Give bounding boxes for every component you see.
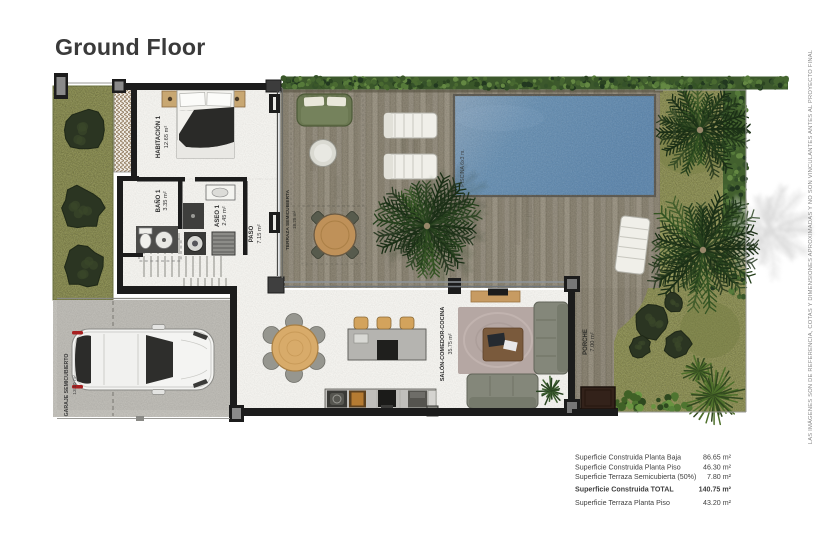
svg-text:Superficie Construida Planta B: Superficie Construida Planta Baja	[575, 454, 681, 462]
svg-text:7.00 m²: 7.00 m²	[590, 332, 596, 351]
svg-text:140.75 m²: 140.75 m²	[699, 486, 732, 494]
svg-text:43.20 m²: 43.20 m²	[703, 499, 732, 507]
svg-text:13.10 m²: 13.10 m²	[72, 375, 78, 395]
svg-text:46.30 m²: 46.30 m²	[703, 464, 732, 472]
svg-text:3.35 m²: 3.35 m²	[163, 191, 169, 210]
svg-text:Superficie Terraza Semicubiert: Superficie Terraza Semicubierta (50%)	[575, 473, 696, 481]
svg-text:LAS IMÁGENES SON DE REFERENCIA: LAS IMÁGENES SON DE REFERENCIA, COTAS Y …	[807, 49, 814, 444]
svg-text:2.45 m²: 2.45 m²	[222, 206, 228, 225]
svg-text:CESPED NATURAL: CESPED NATURAL	[672, 101, 677, 139]
svg-text:BAÑO 1: BAÑO 1	[155, 189, 162, 212]
svg-text:TERRAZA SEMICUBIERTA: TERRAZA SEMICUBIERTA	[285, 189, 291, 250]
svg-text:12.65 m²: 12.65 m²	[164, 126, 170, 149]
svg-text:35.75 m²: 35.75 m²	[448, 333, 454, 354]
svg-text:HABITACIÓN 1: HABITACIÓN 1	[154, 115, 162, 158]
svg-text:Superficie Terraza Planta Piso: Superficie Terraza Planta Piso	[575, 499, 670, 507]
svg-text:PORCHE: PORCHE	[583, 329, 589, 355]
svg-text:Superficie Construida TOTAL: Superficie Construida TOTAL	[575, 486, 674, 494]
svg-text:Superficie Construida Planta P: Superficie Construida Planta Piso	[575, 464, 681, 472]
svg-text:PASO: PASO	[249, 225, 255, 242]
svg-text:18.25 m²: 18.25 m²	[292, 211, 297, 229]
svg-text:86.65 m²: 86.65 m²	[703, 454, 732, 462]
svg-text:ASEO 1: ASEO 1	[215, 204, 221, 227]
svg-text:Ground Floor: Ground Floor	[55, 34, 206, 60]
svg-text:GARAJE SEMICUBIERTO: GARAJE SEMICUBIERTO	[64, 354, 70, 417]
svg-text:7.80 m²: 7.80 m²	[707, 473, 732, 481]
svg-text:SALÓN-COMEDOR-COCINA: SALÓN-COMEDOR-COCINA	[438, 307, 446, 382]
svg-text:7.15 m²: 7.15 m²	[257, 224, 263, 243]
